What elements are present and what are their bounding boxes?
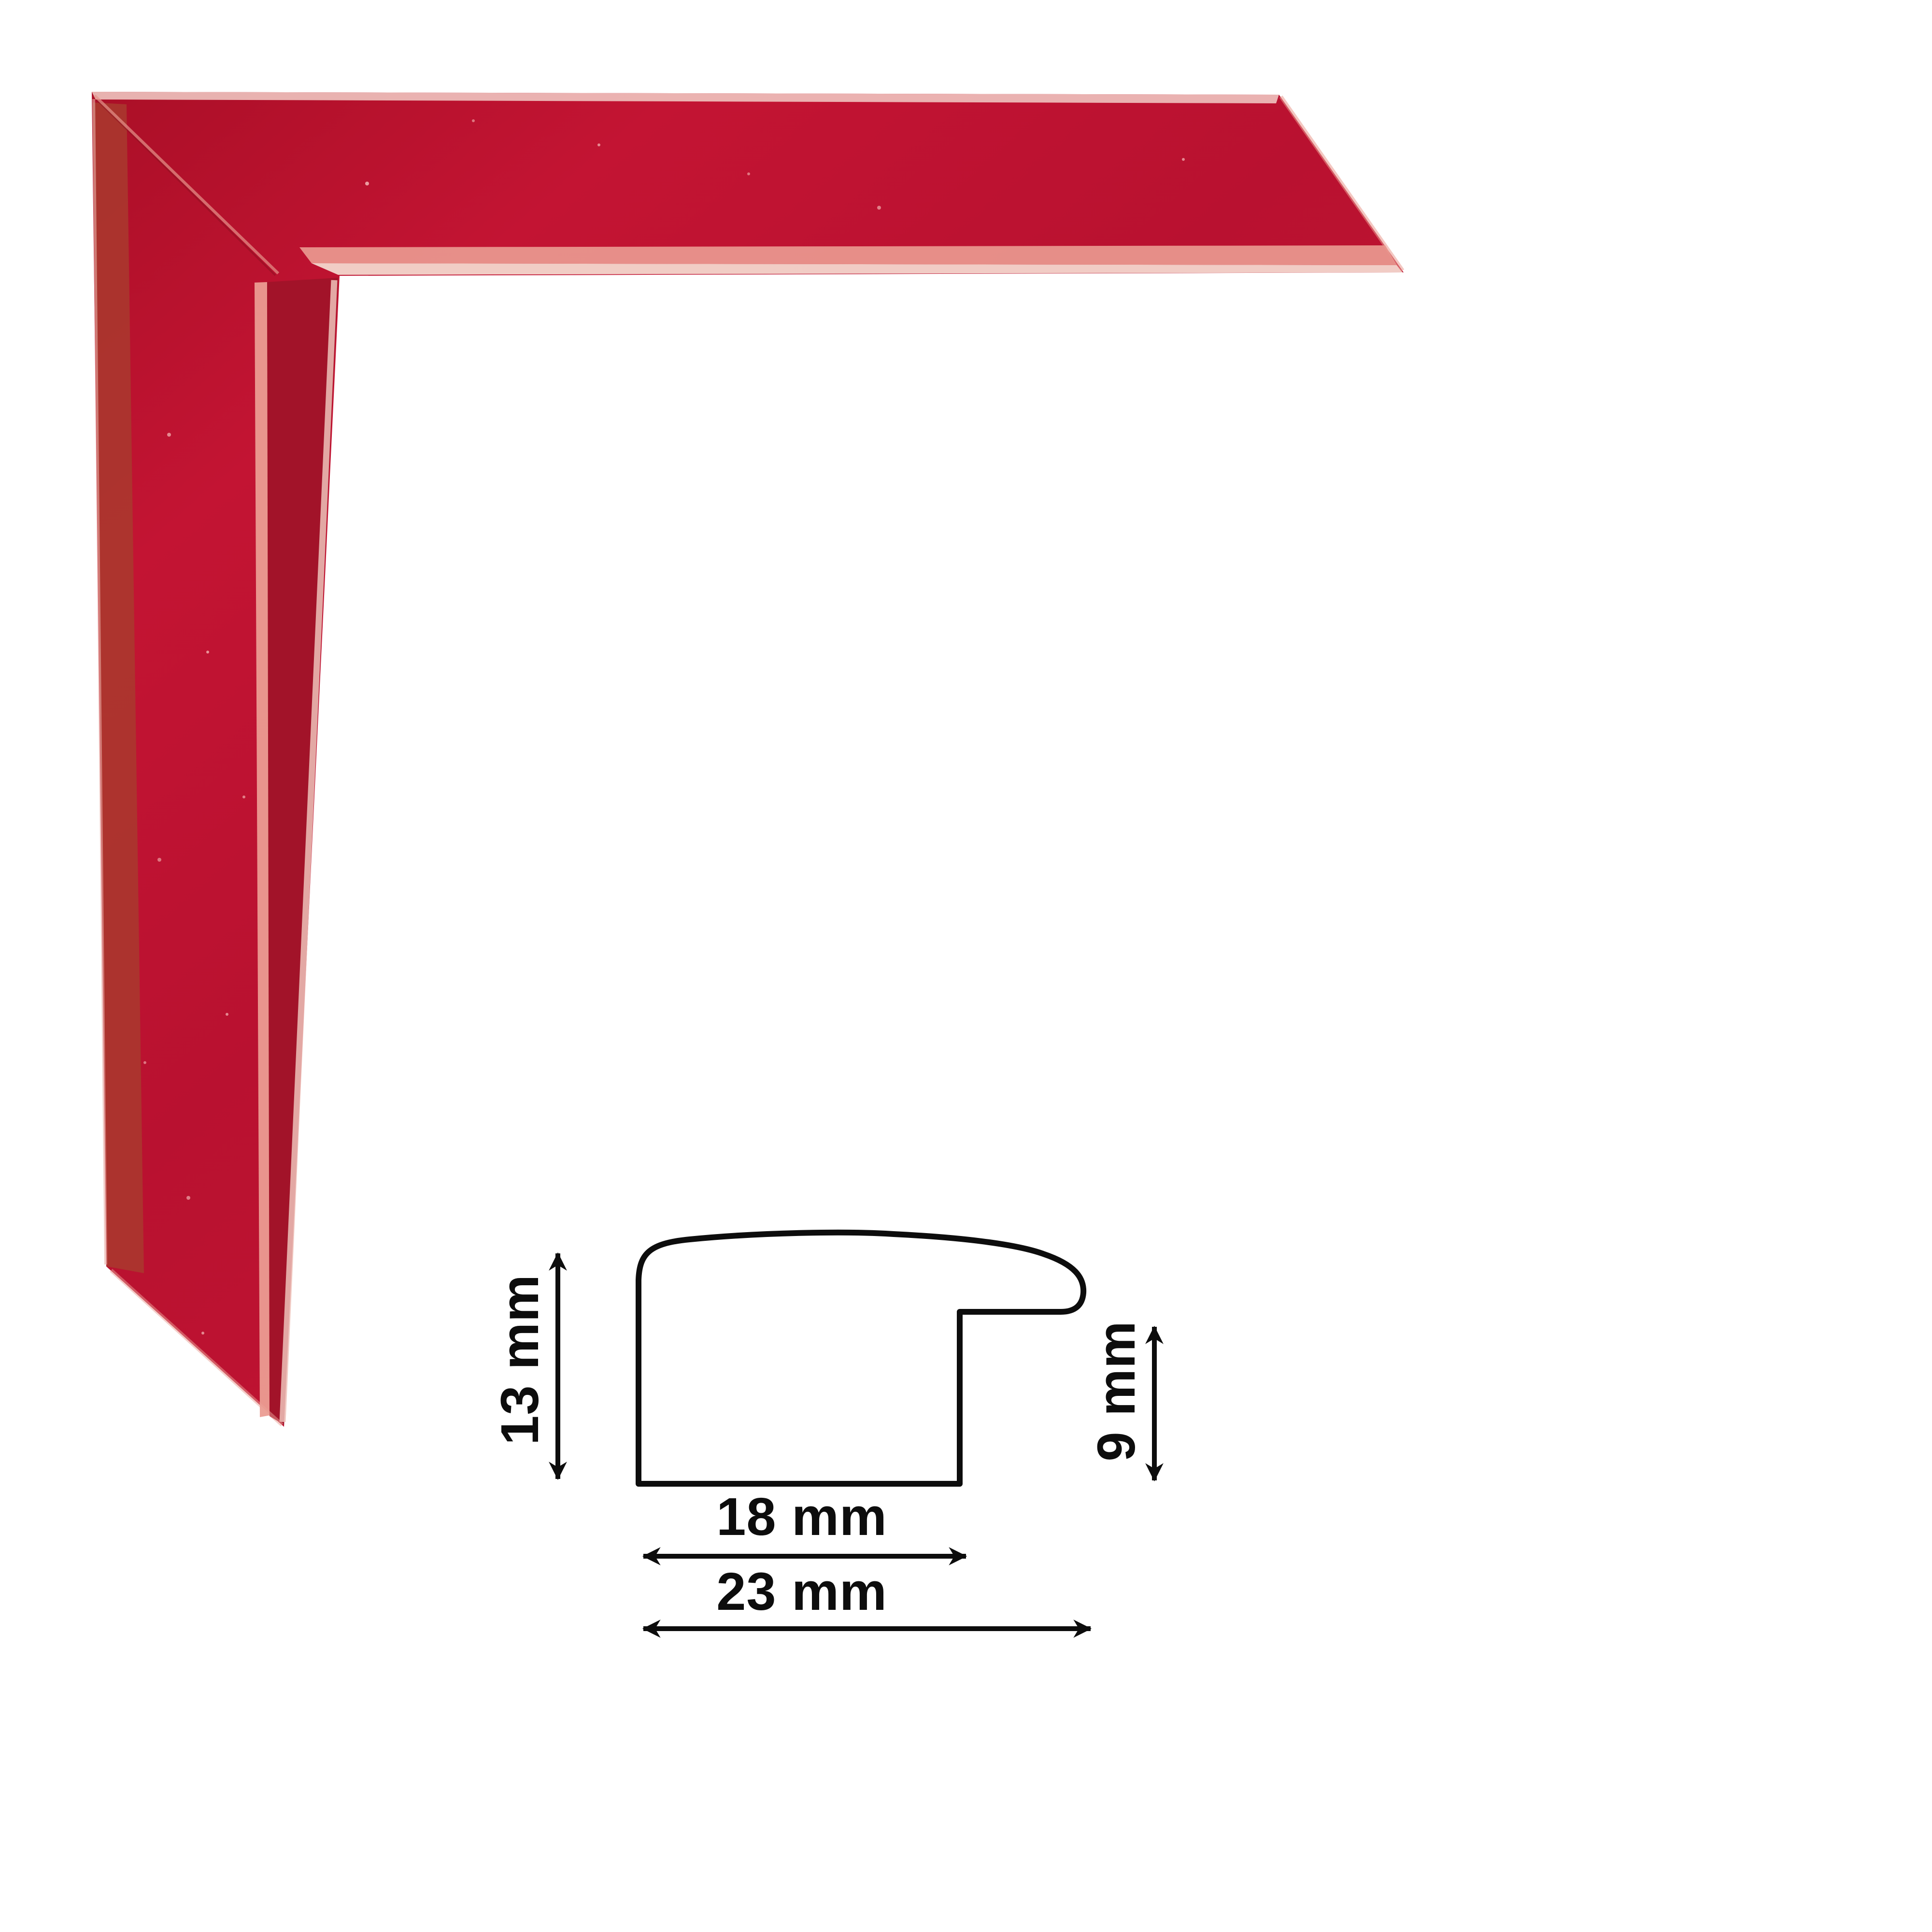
dim-rabbet-height: 9 mm	[1087, 1321, 1154, 1480]
scene: 13 mm 9 mm 18 mm 23 mm	[0, 0, 1932, 1932]
dim-face-width: 18 mm	[643, 1487, 966, 1556]
dim-height: 13 mm	[490, 1253, 558, 1479]
dim-total-width-label: 23 mm	[716, 1562, 887, 1621]
profile-diagram: 13 mm 9 mm 18 mm 23 mm	[490, 1233, 1154, 1629]
page-background: 13 mm 9 mm 18 mm 23 mm	[0, 0, 1932, 1932]
dim-rabbet-height-label: 9 mm	[1087, 1321, 1146, 1461]
frame-corner-photo	[92, 92, 1404, 1427]
frame-bottom-edge-light	[312, 263, 1403, 275]
profile-outline	[639, 1233, 1083, 1484]
dim-face-width-label: 18 mm	[716, 1487, 887, 1547]
frame-bottom-arris-band	[299, 245, 1397, 265]
dim-height-label: 13 mm	[490, 1274, 550, 1445]
dim-total-width: 23 mm	[643, 1562, 1091, 1629]
